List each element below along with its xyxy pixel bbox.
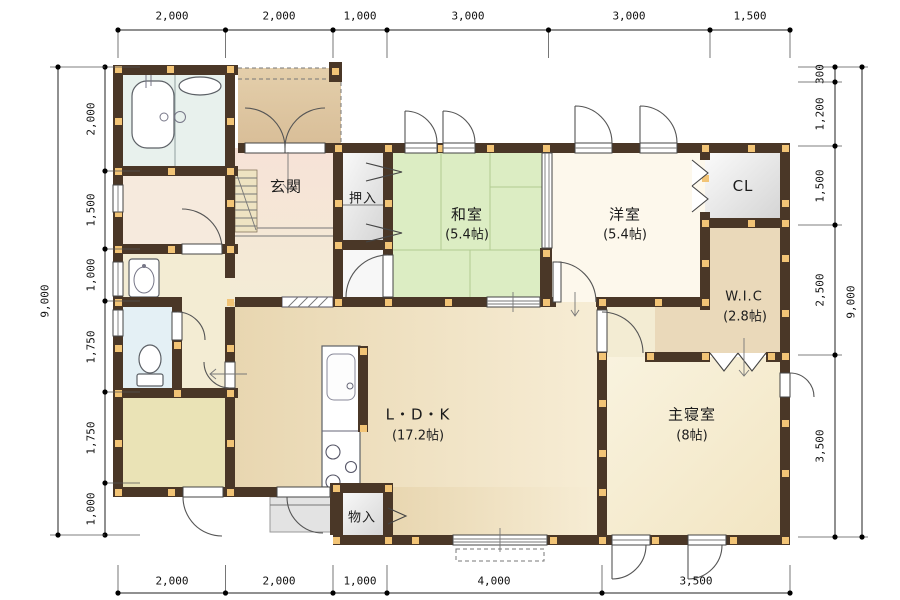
floor-plan: 玄関 押入 和室 (5.4帖) 洋室 (5.4帖) CL W.I.C (2.8帖…: [0, 0, 900, 600]
kitchen-sink: [327, 354, 355, 400]
room-label-genkan: 玄関: [270, 176, 302, 197]
toilet-bowl: [139, 345, 161, 373]
hall-ldk-door-leaf: [225, 362, 235, 388]
dim-left-2: 1,000: [85, 258, 98, 291]
dim-right-1: 1,200: [814, 97, 827, 130]
bedroom-entry-floor: [602, 307, 655, 357]
dim-bottom-0: 2,000: [155, 575, 188, 588]
dim-top-1: 2,000: [262, 10, 295, 23]
stove-burner: [346, 462, 357, 473]
entrance-door-leaf: [285, 143, 325, 153]
dim-left-total: 9,000: [39, 284, 52, 317]
dim-left-1: 1,500: [85, 193, 98, 226]
room-label-monoire: 物入: [348, 507, 376, 526]
room-label-oshiire: 押入: [349, 188, 377, 207]
dim-top-0: 2,000: [155, 10, 188, 23]
dim-top-5: 1,500: [733, 10, 766, 23]
room-label-bedroom: 主寝室: [668, 404, 716, 425]
room-size-bedroom: (8帖): [676, 425, 707, 444]
room-label-cl: CL: [733, 177, 754, 195]
room-size-ldk: (17.2帖): [392, 425, 444, 444]
dim-bottom-4: 3,500: [679, 575, 712, 588]
dim-right-total: 9,000: [845, 285, 858, 318]
dim-left-0: 2,000: [85, 102, 98, 135]
room-size-youshitsu: (5.4帖): [603, 224, 647, 243]
room-size-washitsu: (5.4帖): [445, 224, 489, 243]
room-label-wic: W.I.C: [725, 290, 763, 305]
closet-floor: [338, 245, 388, 302]
utility-room-floor: [118, 393, 230, 492]
floor-plan-drawing: [0, 0, 900, 600]
back-door-leaf: [277, 487, 330, 497]
dim-top-3: 3,000: [451, 10, 484, 23]
washitsu-ldk-slider: [487, 297, 540, 307]
dim-right-4: 3,500: [814, 429, 827, 462]
dim-left-4: 1,750: [85, 421, 98, 454]
toilet-tank: [137, 374, 163, 386]
bedroom-floor: [602, 357, 785, 540]
stove-burner: [326, 445, 340, 459]
room-size-wic: (2.8帖): [723, 306, 767, 325]
youshitsu-door-leaf: [553, 262, 561, 302]
washitsu-youshitsu-slider: [542, 153, 552, 248]
dim-left-3: 1,750: [85, 330, 98, 363]
room-label-washitsu: 和室: [451, 204, 483, 225]
dim-top-4: 3,000: [612, 10, 645, 23]
dim-bottom-3: 4,000: [477, 575, 510, 588]
porch-floor: [238, 68, 341, 148]
dim-right-0: 300: [814, 64, 827, 84]
toilet-door-leaf: [172, 312, 182, 340]
dim-bottom-2: 1,000: [343, 575, 376, 588]
bedroom-door-leaf: [597, 310, 607, 352]
bedroom-ext-door-leaf: [780, 373, 790, 397]
dim-top-2: 1,000: [343, 10, 376, 23]
bath-counter: [179, 77, 221, 95]
entrance-door-leaf: [245, 143, 285, 153]
dim-bottom-1: 2,000: [262, 575, 295, 588]
dim-right-3: 2,500: [814, 273, 827, 306]
ldk-floor: [230, 302, 602, 492]
utility-door-leaf: [183, 487, 223, 497]
dim-left-5: 1,000: [85, 492, 98, 525]
back-door-step: [270, 497, 332, 532]
room-label-ldk: L・D・K: [386, 404, 451, 425]
washroom-door-leaf: [182, 244, 222, 254]
dim-right-2: 1,500: [814, 169, 827, 202]
closet-door-leaf: [383, 255, 393, 297]
room-label-youshitsu: 洋室: [609, 204, 641, 225]
